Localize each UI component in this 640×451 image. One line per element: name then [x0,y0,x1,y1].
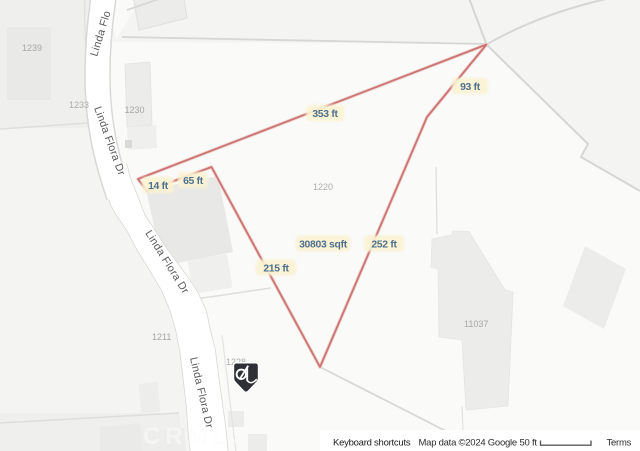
svg-text:65 ft: 65 ft [183,176,204,187]
svg-text:Keyboard shortcuts: Keyboard shortcuts [333,438,411,449]
svg-text:11037: 11037 [464,319,488,329]
svg-text:1239: 1239 [22,43,42,53]
svg-text:14 ft: 14 ft [148,181,169,192]
svg-text:1211: 1211 [152,332,171,342]
svg-text:1230: 1230 [125,105,145,115]
svg-text:215 ft: 215 ft [263,263,289,274]
svg-text:50 ft: 50 ft [520,438,538,449]
svg-text:Map data ©2024 Google: Map data ©2024 Google [419,438,517,449]
svg-text:353 ft: 353 ft [312,109,338,120]
svg-text:30803 sqft: 30803 sqft [299,239,348,250]
svg-text:1220: 1220 [313,182,333,192]
svg-text:93 ft: 93 ft [460,82,481,93]
svg-text:Terms: Terms [607,438,632,449]
svg-text:CRMLS: CRMLS [143,423,253,450]
svg-text:252 ft: 252 ft [371,239,397,250]
svg-text:1233: 1233 [69,100,89,110]
